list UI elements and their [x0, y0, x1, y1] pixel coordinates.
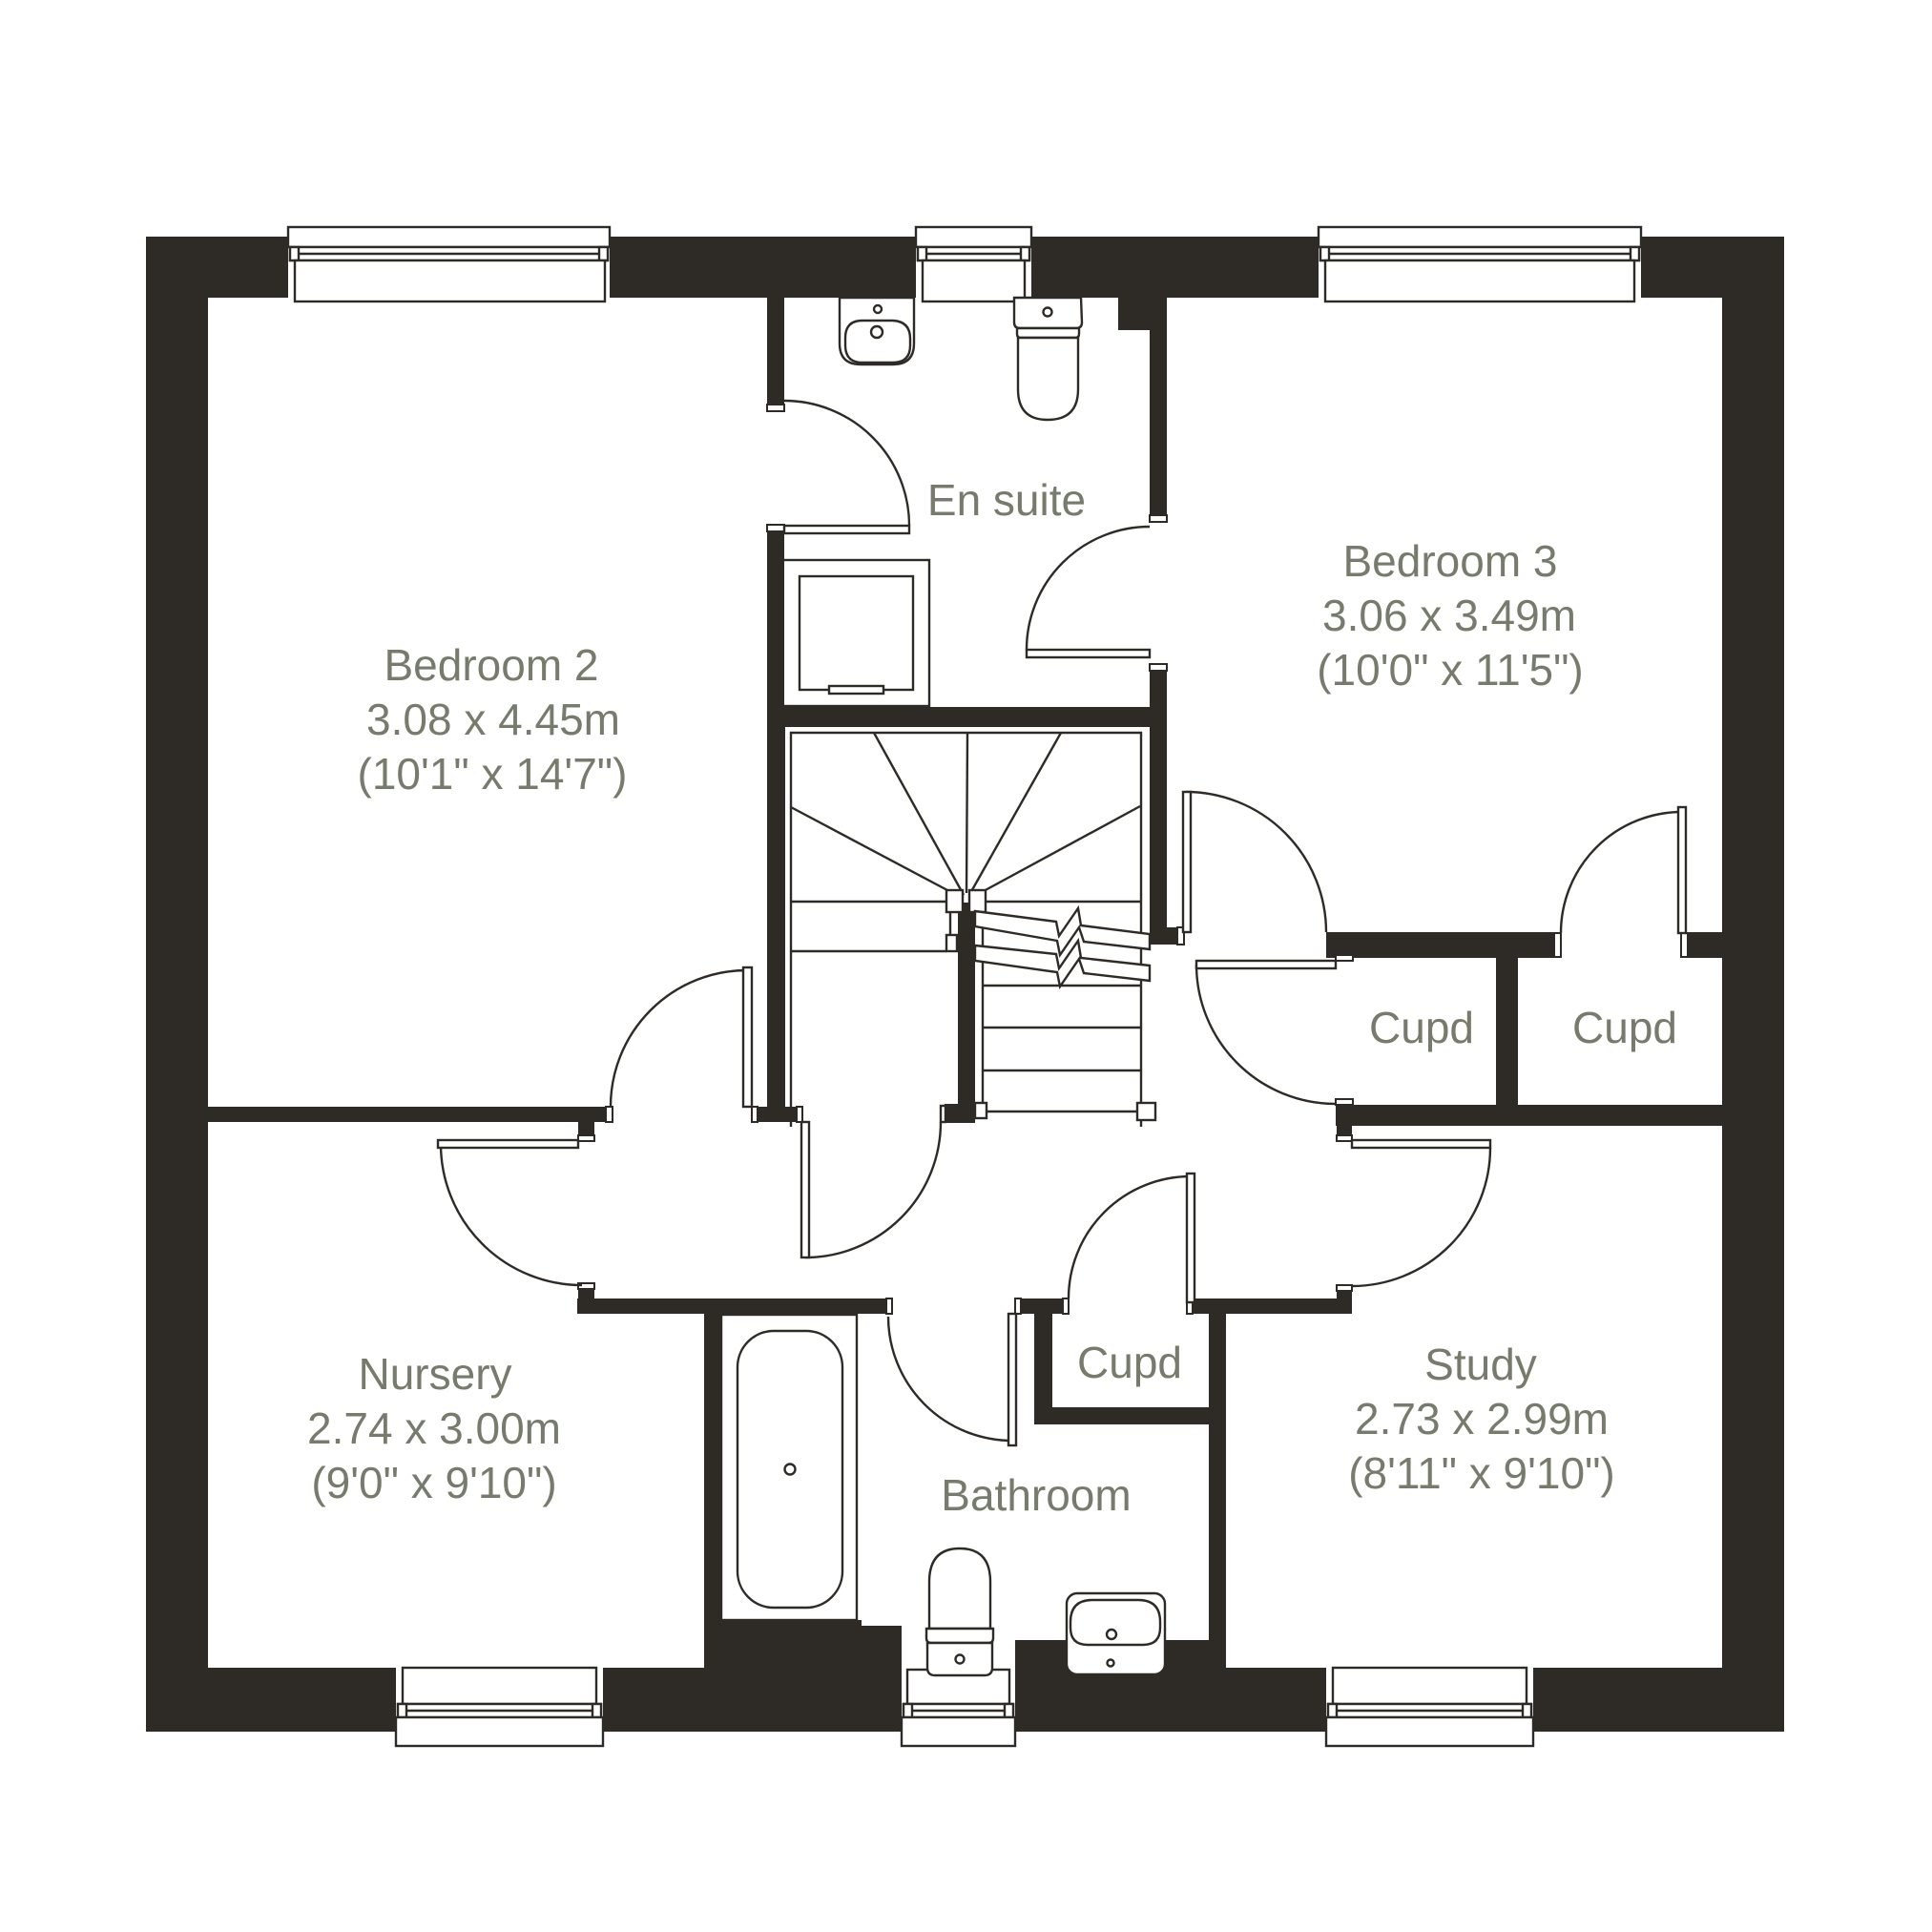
svg-text:Cupd: Cupd	[1077, 1338, 1182, 1387]
svg-text:Bedroom 2: Bedroom 2	[384, 640, 598, 690]
svg-text:Cupd: Cupd	[1369, 1003, 1474, 1052]
svg-text:En suite: En suite	[927, 475, 1086, 525]
svg-text:2.74 x 3.00m: 2.74 x 3.00m	[307, 1403, 561, 1453]
svg-text:(10'0" x 11'5"): (10'0" x 11'5")	[1317, 645, 1584, 695]
svg-text:Study: Study	[1424, 1340, 1537, 1389]
svg-text:Bathroom: Bathroom	[941, 1470, 1131, 1520]
svg-text:(9'0" x 9'10"): (9'0" x 9'10")	[311, 1458, 556, 1507]
svg-text:Cupd: Cupd	[1572, 1003, 1677, 1052]
svg-text:Nursery: Nursery	[358, 1349, 511, 1399]
svg-text:2.73 x 2.99m: 2.73 x 2.99m	[1355, 1394, 1609, 1444]
svg-text:3.08 x 4.45m: 3.08 x 4.45m	[366, 695, 620, 744]
svg-text:(10'1" x 14'7"): (10'1" x 14'7")	[358, 749, 628, 799]
svg-text:Bedroom 3: Bedroom 3	[1342, 536, 1557, 586]
svg-text:3.06 x 3.49m: 3.06 x 3.49m	[1322, 591, 1576, 640]
svg-text:(8'11" x 9'10"): (8'11" x 9'10")	[1348, 1448, 1615, 1498]
